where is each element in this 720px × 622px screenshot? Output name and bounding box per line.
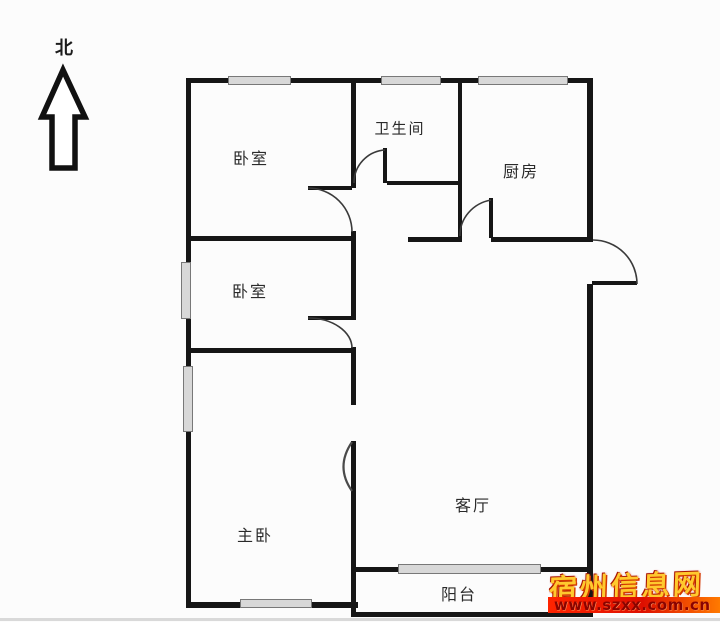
window-balcony-slider	[398, 564, 541, 574]
room-label-bathroom: 卫生间	[374, 118, 425, 139]
room-label-balcony: 阳台	[441, 581, 477, 605]
door-leaf-entry	[592, 281, 637, 285]
door-leaf-bedroom-top	[308, 186, 352, 190]
wall-kitchen-bottom	[491, 237, 592, 242]
wall-bathroom-kitchen-divider	[458, 78, 462, 242]
floor-plan: 北 卧室 卫生间 厨房 卧室 主卧 客厅 阳台 宿州信息	[0, 0, 720, 622]
wall-bedroom-middle-bottom	[186, 348, 356, 353]
wall-exterior-right-upper	[587, 78, 593, 242]
window-kitchen	[478, 76, 568, 85]
door-leaf-bathroom	[383, 148, 387, 183]
window-bathroom	[381, 76, 441, 85]
door-swing-arc-entry	[593, 240, 637, 284]
north-label: 北	[55, 34, 73, 60]
north-arrow-icon	[42, 70, 85, 168]
room-label-master-bedroom: 主卧	[237, 522, 273, 546]
room-label-living-room: 客厅	[455, 492, 491, 516]
plan-symbols-layer	[0, 0, 720, 622]
room-label-bedroom-top: 卧室	[233, 145, 269, 169]
wall-corridor-bottom	[408, 237, 462, 242]
window-master-bottom	[240, 599, 312, 608]
wall-center-segment-2	[351, 231, 356, 320]
watermark-url-banner: www.szxx.com.cn	[548, 597, 720, 613]
window-bedroom-top	[228, 76, 291, 85]
door-leaf-kitchen	[489, 198, 493, 238]
watermark-site-url: www.szxx.com.cn	[548, 597, 720, 613]
door-leaf-bedroom-middle	[308, 316, 352, 320]
image-bottom-edge	[0, 618, 720, 621]
door-swing-arc-kitchen	[460, 200, 491, 236]
wall-bedroom-top-bottom	[186, 236, 356, 241]
wall-exterior-left	[186, 78, 191, 608]
room-label-kitchen: 厨房	[503, 158, 539, 182]
wall-bathroom-bottom	[387, 181, 462, 185]
room-label-bedroom-middle: 卧室	[232, 278, 268, 302]
wall-center-segment-1	[351, 78, 356, 188]
wall-center-segment-4	[351, 441, 356, 617]
door-swing-arc-bedroom-top	[308, 188, 352, 232]
window-master-left	[183, 366, 193, 432]
door-swing-arc-bedroom-middle	[308, 318, 352, 348]
door-swing-arc-bathroom	[354, 150, 385, 183]
wall-center-segment-3	[351, 347, 356, 405]
window-bedroom-middle-left	[181, 262, 191, 319]
